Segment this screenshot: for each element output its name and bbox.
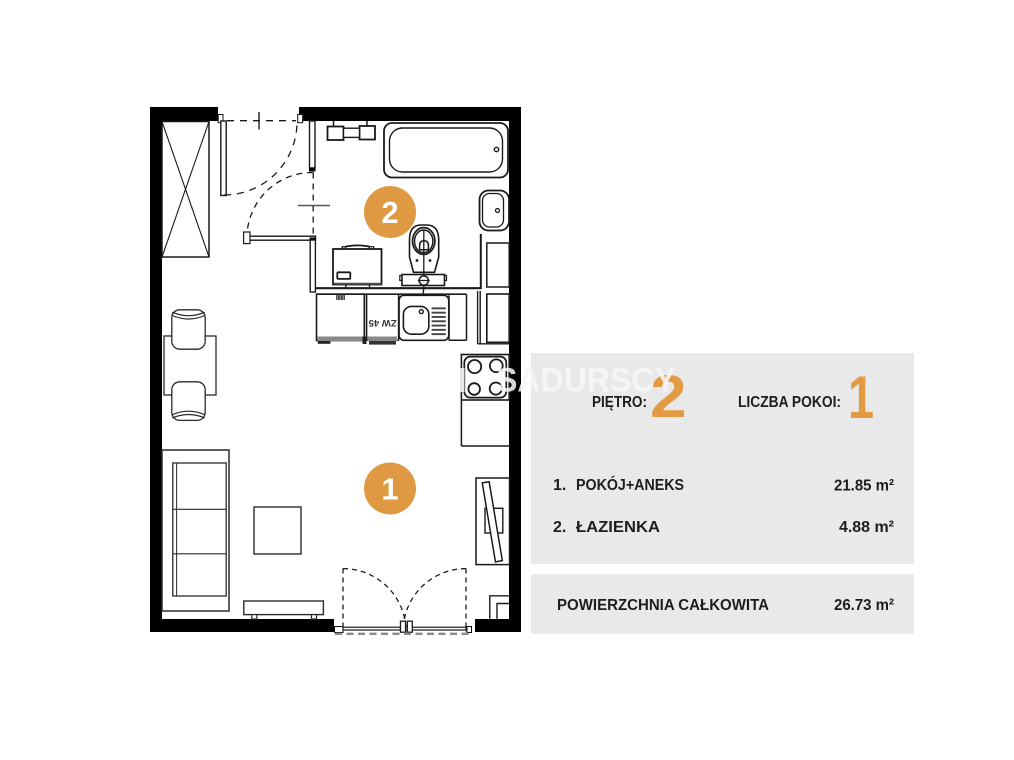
svg-text:ŁAZIENKA: ŁAZIENKA xyxy=(576,519,660,536)
svg-text:POKÓJ+ANEKS: POKÓJ+ANEKS xyxy=(576,475,684,494)
svg-text:21.85 m²: 21.85 m² xyxy=(834,478,894,495)
svg-text:2: 2 xyxy=(381,195,398,230)
svg-text:SADURSCY: SADURSCY xyxy=(496,362,676,400)
svg-text:1.: 1. xyxy=(553,477,566,494)
svg-text:26.73 m²: 26.73 m² xyxy=(834,597,894,614)
svg-text:LICZBA POKOI:: LICZBA POKOI: xyxy=(738,394,841,411)
svg-text:ZW 45: ZW 45 xyxy=(368,317,397,328)
svg-text:1: 1 xyxy=(848,364,874,431)
svg-text:4.88 m²: 4.88 m² xyxy=(839,519,894,536)
svg-text:POWIERZCHNIA CAŁKOWITA: POWIERZCHNIA CAŁKOWITA xyxy=(557,597,769,614)
svg-text:1: 1 xyxy=(381,472,398,507)
svg-text:2.: 2. xyxy=(553,519,566,536)
